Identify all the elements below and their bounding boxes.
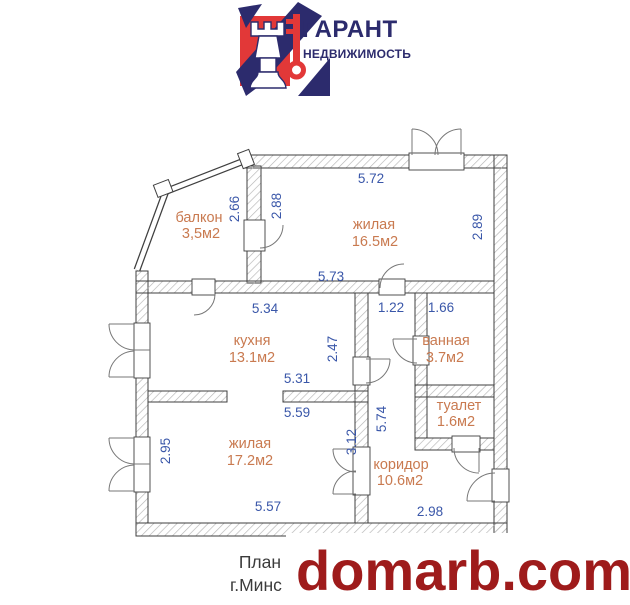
dim-kitchen-right: 2.47	[325, 336, 340, 362]
room-corridor-name: коридор	[373, 457, 428, 473]
kitchen-window	[109, 323, 150, 378]
room-living1-name: жилая	[353, 217, 395, 233]
kitchen-corridor-door	[353, 357, 390, 385]
watermark: domarb.com	[286, 533, 630, 605]
wall-bath-toilet	[415, 385, 494, 397]
toilet-door	[452, 436, 480, 473]
dim-living2-right: 3.12	[344, 429, 359, 455]
logo-subtitle: НЕДВИЖИМОСТЬ	[303, 47, 411, 61]
dim-living1-left: 2.88	[269, 193, 284, 219]
dim-kitchen-bottom: 5.31	[284, 371, 310, 386]
dim-balcony-side: 2.66	[227, 196, 242, 222]
room-kitchen-name: кухня	[234, 333, 271, 349]
logo-title: ГАРАНТ	[302, 16, 398, 43]
dim-hall-top: 1.22	[378, 300, 404, 315]
dim-living1-top: 5.72	[358, 171, 384, 186]
wall-kitchen-living2-left	[148, 391, 227, 402]
room-balcony-area: 3,5м2	[182, 226, 220, 242]
balcony-living1-door	[244, 220, 283, 251]
wall-kitchen-living2-right	[283, 391, 368, 402]
balcony-kitchen-door	[192, 279, 215, 315]
caption-line2: г.Минс	[230, 575, 282, 595]
room-balcony-name: балкон	[175, 210, 222, 226]
room-toilet-name: туалет	[437, 398, 482, 414]
entrance-door	[467, 469, 509, 502]
french-door	[409, 129, 464, 170]
room-bath-area: 3.7м2	[426, 350, 464, 366]
caption: План г.Минс	[230, 552, 282, 595]
caption-line1: План	[239, 552, 281, 572]
room-living2-name: жилая	[229, 436, 271, 452]
dim-living1-bottom: 5.73	[318, 269, 344, 284]
room-corridor-area: 10.6м2	[377, 473, 423, 489]
rook-icon	[250, 22, 286, 88]
agency-logo: ГАРАНТ НЕДВИЖИМОСТЬ	[236, 2, 411, 96]
dim-bath-top: 1.66	[428, 300, 454, 315]
room-living1-area: 16.5м2	[352, 234, 398, 250]
dim-kitchen-top: 5.34	[252, 301, 279, 316]
dim-living2-bottom: 5.57	[255, 499, 281, 514]
living2-window	[109, 437, 150, 492]
watermark-text: domarb.com	[296, 539, 630, 602]
room-bath-name: ванная	[422, 333, 470, 349]
balcony-corner-joint	[153, 180, 173, 198]
floor-plan-page: ГАРАНТ НЕДВИЖИМОСТЬ	[0, 0, 630, 605]
wall-top	[243, 155, 507, 168]
dim-corridor-bottom: 2.98	[417, 504, 443, 519]
dim-living1-right: 2.89	[470, 214, 485, 240]
wall-living1-bottom	[136, 281, 494, 293]
dim-corridor-side: 5.74	[374, 405, 389, 432]
room-kitchen-area: 13.1м2	[229, 350, 275, 366]
room-toilet-area: 1.6м2	[437, 414, 475, 430]
dim-living2-left: 2.95	[158, 438, 173, 464]
room-living2-area: 17.2м2	[227, 453, 273, 469]
living1-hall-door	[379, 264, 405, 295]
dim-living2-top: 5.59	[284, 405, 310, 420]
